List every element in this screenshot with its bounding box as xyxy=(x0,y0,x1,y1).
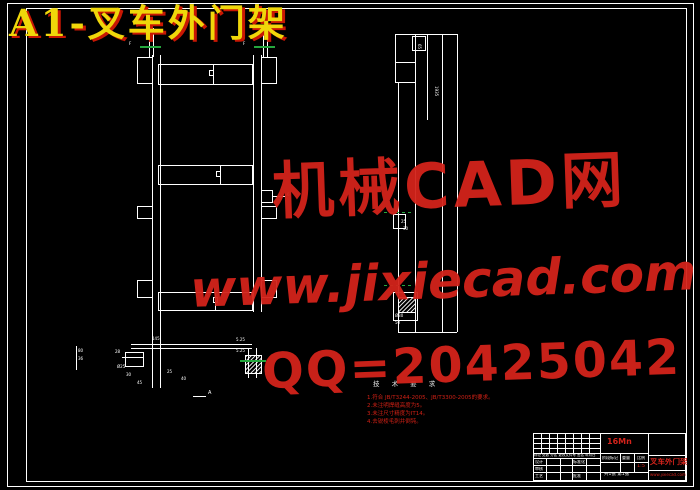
scale-value: 1:5 xyxy=(637,464,645,469)
dim-label: 40 xyxy=(181,377,186,381)
view-arrow-line xyxy=(193,396,206,397)
title-block-line xyxy=(533,458,600,459)
title-block-line xyxy=(533,472,600,473)
title-block-line xyxy=(546,458,547,480)
view-arrow-label: A xyxy=(208,391,211,396)
weld-symbol xyxy=(216,171,221,177)
title-block-line xyxy=(648,455,685,456)
title-block-line xyxy=(600,462,648,463)
dim-label: 30 xyxy=(126,373,131,377)
title-block-line xyxy=(581,433,582,453)
title-block-line xyxy=(533,465,600,466)
dim-label: 5.25 xyxy=(236,349,245,353)
projection-line xyxy=(131,348,252,349)
weight-label: 重量 xyxy=(622,456,630,460)
scale-label: 比例 xyxy=(637,456,645,460)
title-block-line xyxy=(565,433,566,453)
sheet-inner-border xyxy=(26,8,687,482)
watermark-brand: 机械CAD网 xyxy=(271,149,628,223)
section-cut-mark xyxy=(140,46,161,48)
profile-detail-box xyxy=(125,352,144,367)
dim-label: 65 xyxy=(417,44,421,49)
dim-label: 80 xyxy=(78,349,83,353)
sheet-count: 共1张 第1张 xyxy=(604,473,629,478)
dim-label: Ø25 xyxy=(117,365,125,369)
material-value: 16Mn xyxy=(607,438,632,446)
banner-title: A1-叉车外门架 xyxy=(9,5,288,42)
rail-bracket xyxy=(137,57,153,84)
side-bottom-edge xyxy=(398,332,457,333)
channel-profile-line xyxy=(152,312,153,388)
title-block-line xyxy=(541,433,542,453)
side-step-box xyxy=(395,62,416,83)
title-block-line xyxy=(648,470,685,471)
top-cross-beam xyxy=(158,64,253,85)
weld-symbol xyxy=(209,70,214,76)
tech-requirement-item: 3.未注尺寸精度为IT14。 xyxy=(367,410,494,418)
dimension-line xyxy=(76,346,77,370)
section-cut-mark xyxy=(254,46,275,48)
dim-label: 28 xyxy=(115,350,120,354)
dim-label: 50 xyxy=(395,321,400,325)
process-label: 工艺 xyxy=(535,474,543,478)
cad-sheet: F F 145 80 36 28 Ø25 30 45 25 40 5.25 5.… xyxy=(0,0,700,490)
dim-label: 25 xyxy=(167,370,172,374)
title-block-line xyxy=(549,433,550,453)
tech-requirement-item: 4.去锐棱毛刺并倒钝。 xyxy=(367,418,494,426)
title-block-line xyxy=(620,453,621,472)
front-left-rail-line xyxy=(152,55,153,312)
rail-bracket xyxy=(137,206,153,219)
title-block-line xyxy=(557,433,558,453)
approve-label: 批准 xyxy=(573,474,581,478)
dim-label: 30 xyxy=(403,227,408,231)
tech-requirement-item: 2.未注明焊缝高度为5。 xyxy=(367,402,494,410)
dim-label: 145 xyxy=(152,337,160,341)
projection-line xyxy=(131,344,252,345)
audit-label: 审核 xyxy=(535,467,543,471)
hatched-section xyxy=(245,355,262,374)
title-block-website: www.jixiecad.com xyxy=(650,473,686,477)
side-top-edge xyxy=(395,34,457,35)
revision-header: 标记 处数 分区 更改文件号 签名 年月日 xyxy=(534,454,599,458)
side-rail-line xyxy=(427,34,428,120)
dim-label: 45 xyxy=(137,381,142,385)
title-block-line xyxy=(634,453,635,472)
standardization-label: 标准化 xyxy=(573,460,585,464)
title-block-line xyxy=(600,453,648,454)
rail-bracket xyxy=(137,280,153,298)
part-name: 叉车外门架 xyxy=(650,458,688,466)
stage-mark-label: 阶段标记 xyxy=(602,456,618,460)
design-label: 设计 xyxy=(535,460,543,464)
title-block-line xyxy=(573,433,574,453)
mid-cross-beam xyxy=(158,165,253,185)
dim-label: Ø30 xyxy=(395,314,403,318)
dim-label: 36 xyxy=(78,357,83,361)
title-block-line xyxy=(560,458,561,480)
title-block-line xyxy=(589,433,590,453)
channel-profile-line xyxy=(160,312,161,388)
rail-bracket xyxy=(261,57,277,84)
watermark-qq: QQ=20425042 xyxy=(261,333,682,397)
dim-label: 1935 xyxy=(434,86,438,96)
title-block-line xyxy=(586,458,587,480)
dim-label: 5.25 xyxy=(236,338,245,342)
title-block-line xyxy=(648,433,649,480)
